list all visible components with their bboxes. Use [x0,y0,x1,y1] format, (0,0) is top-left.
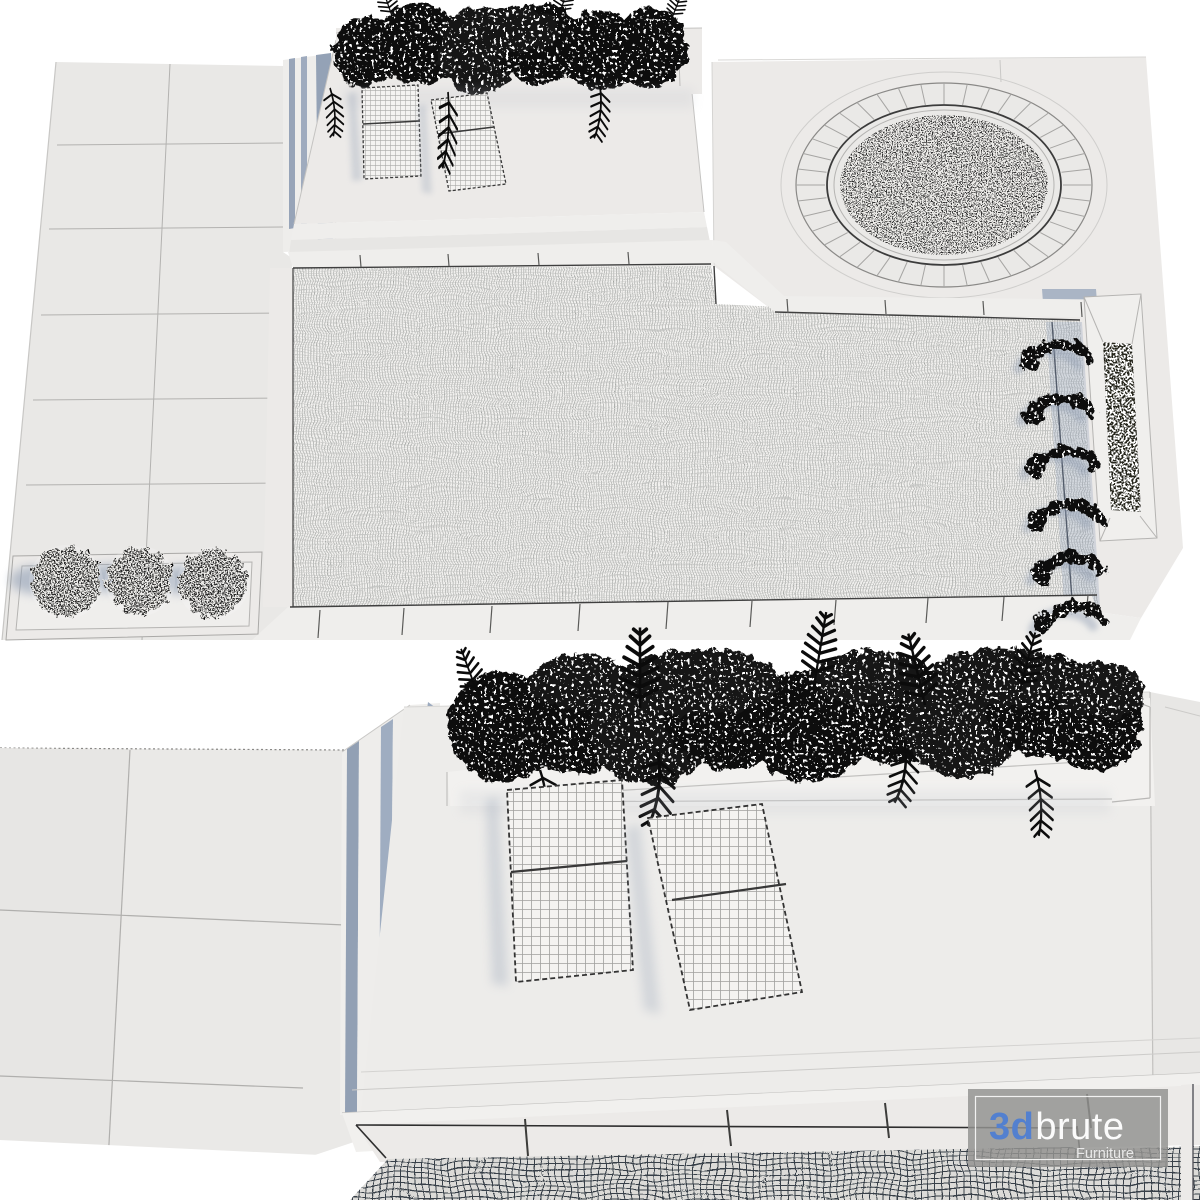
svg-text:3dbrute: 3dbrute [989,1106,1124,1148]
svg-text:Furniture: Furniture [1076,1146,1134,1162]
